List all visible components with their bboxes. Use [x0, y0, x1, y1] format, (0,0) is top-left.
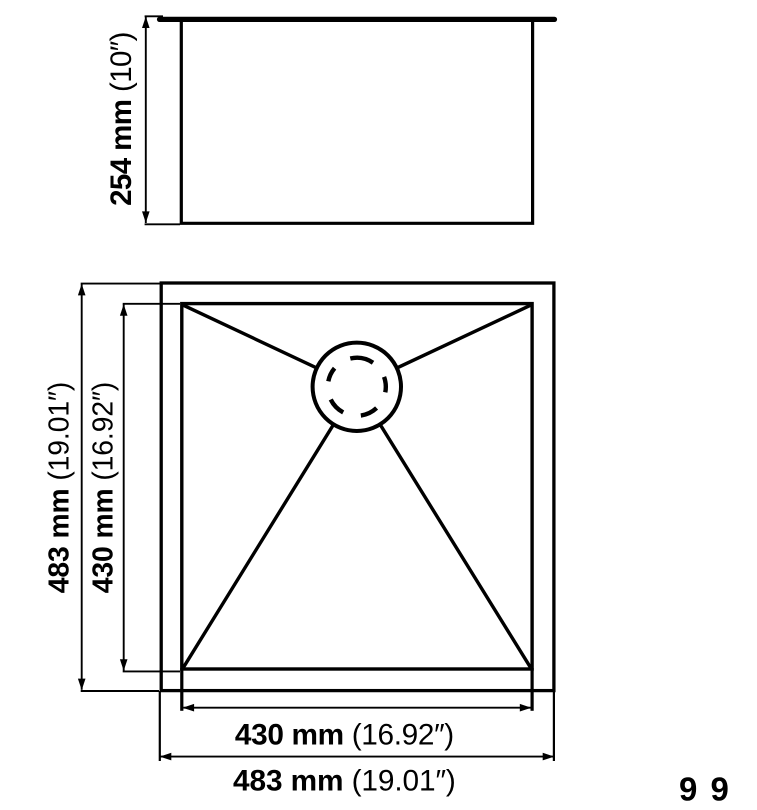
svg-text:254 mm (10″): 254 mm (10″) — [105, 32, 138, 206]
svg-text:483 mm (19.01″): 483 mm (19.01″) — [42, 382, 74, 593]
svg-text:430 mm (16.92″): 430 mm (16.92″) — [235, 718, 454, 751]
svg-text:9 9: 9 9 — [679, 771, 731, 808]
svg-text:430 mm (16.92″): 430 mm (16.92″) — [87, 382, 119, 593]
svg-text:483 mm (19.01″): 483 mm (19.01″) — [233, 764, 456, 797]
